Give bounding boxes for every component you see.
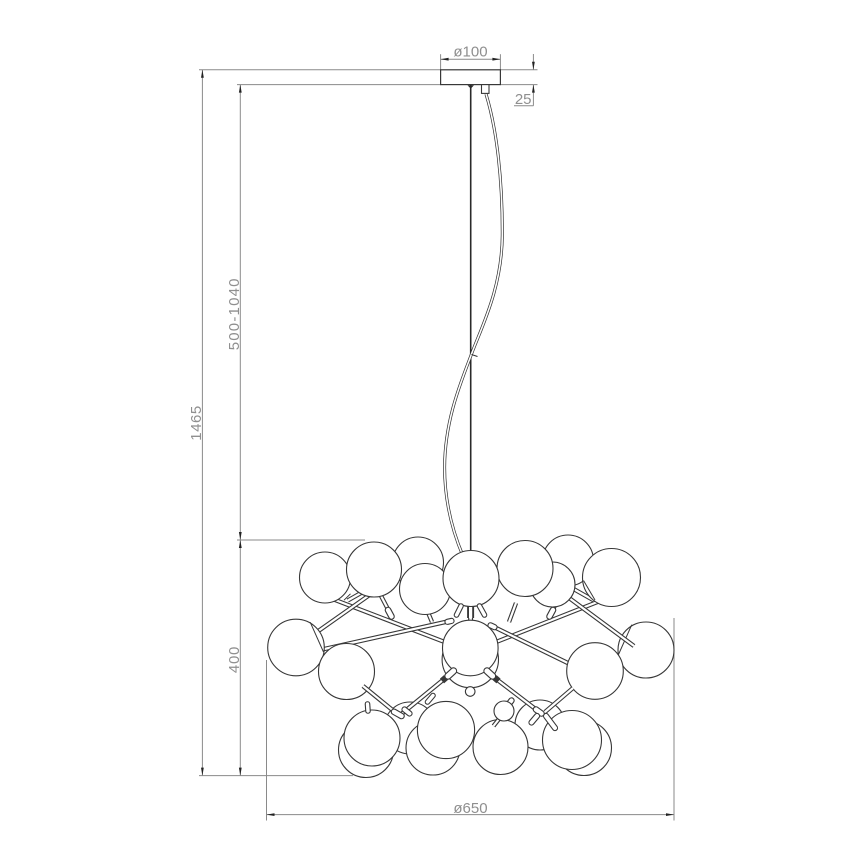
svg-text:ø650: ø650	[453, 800, 487, 817]
svg-text:25: 25	[515, 91, 532, 108]
svg-text:500-1040: 500-1040	[226, 277, 243, 350]
svg-text:ø100: ø100	[453, 44, 487, 61]
svg-text:1465: 1465	[188, 405, 205, 440]
svg-text:400: 400	[226, 646, 243, 673]
